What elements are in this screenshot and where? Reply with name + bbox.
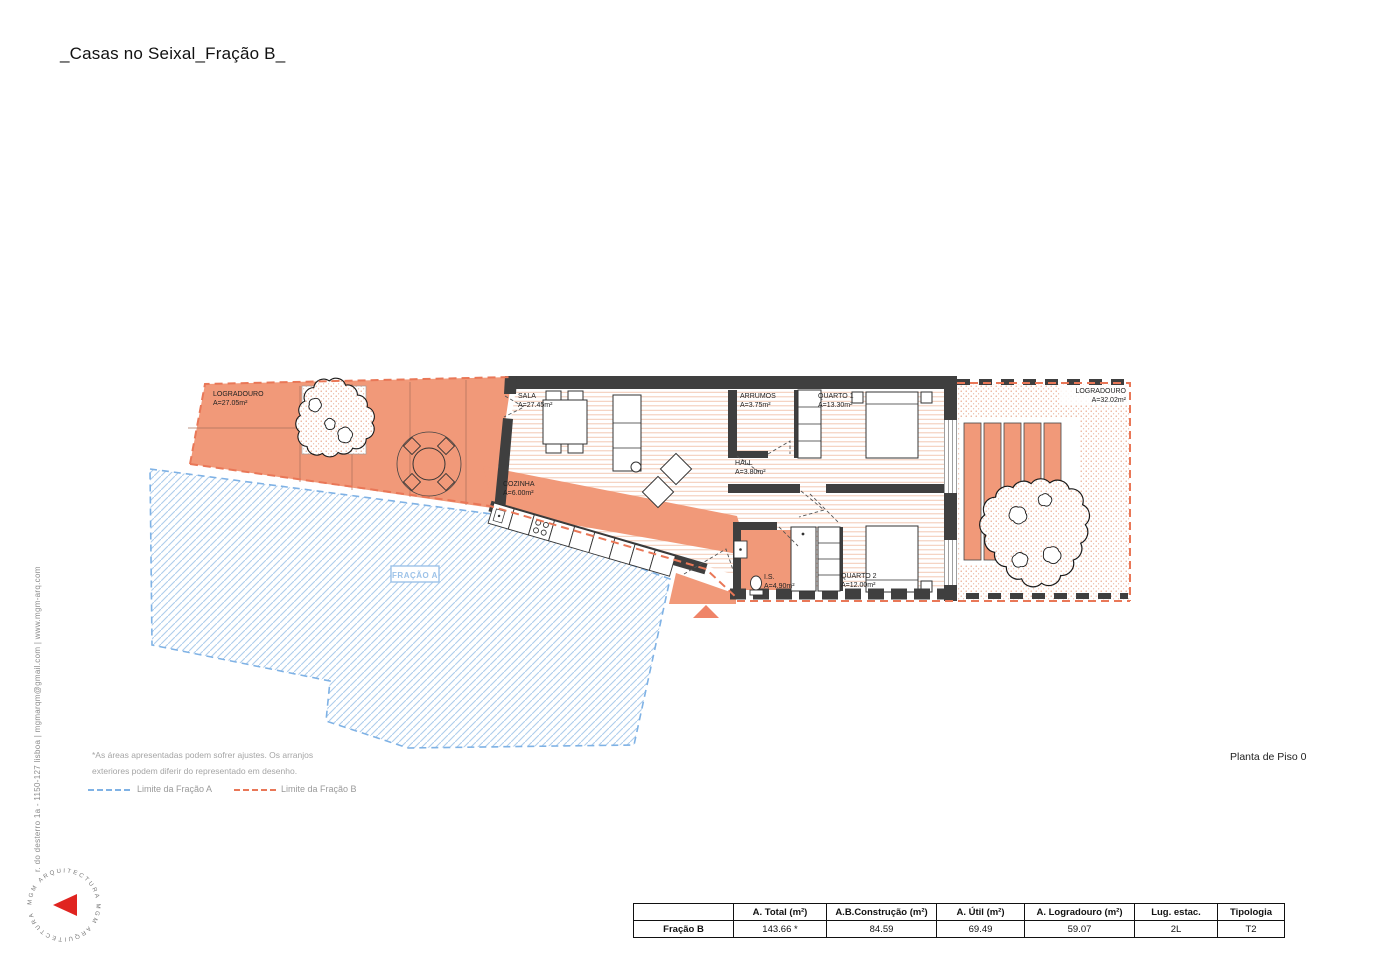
- room-area: A=13.30m²: [818, 402, 853, 409]
- firm-address: r. do desterro 1a - 1150-127 lisboa | mg…: [33, 566, 42, 872]
- legend-line-fracao-b: [234, 789, 276, 791]
- room-label: LOGRADOURO: [1075, 388, 1126, 395]
- room-label: HALL: [735, 460, 753, 467]
- washbasin-icon: [734, 541, 747, 558]
- entrance-marker: [693, 605, 719, 618]
- sheet: _Casas no Seixal_Fração B_ FRAÇÃO A: [0, 0, 1382, 971]
- cell-lug-estac: 2L: [1135, 921, 1218, 938]
- col-header: A.B.Construção (m²): [827, 904, 937, 921]
- row-label: Fração B: [634, 921, 734, 938]
- table-header-row: A. Total (m²) A.B.Construção (m²) A. Úti…: [634, 904, 1285, 921]
- col-header: Lug. estac.: [1135, 904, 1218, 921]
- legend-line-fracao-a: [88, 789, 130, 791]
- areas-table: A. Total (m²) A.B.Construção (m²) A. Úti…: [633, 903, 1285, 938]
- cell-a-logradouro: 59.07: [1025, 921, 1135, 938]
- col-header: A. Útil (m²): [937, 904, 1025, 921]
- room-label: QUARTO 2: [841, 573, 877, 580]
- room-label: ARRUMOS: [740, 393, 776, 400]
- legend-label-fracao-a: Limite da Fração A: [137, 784, 212, 794]
- legend-label-fracao-b: Limite da Fração B: [281, 784, 357, 794]
- cell-a-util: 69.49: [937, 921, 1025, 938]
- firm-logo: MGM ARQUITECTURA MGM ARQUITECTURA: [24, 863, 104, 948]
- disclaimer-note: *As áreas apresentadas podem sofrer ajus…: [92, 748, 313, 779]
- drawing-label: Planta de Piso 0: [1230, 751, 1306, 763]
- door-panel: [791, 527, 816, 591]
- room-area: A=32.02m²: [1092, 397, 1127, 404]
- cell-tipologia: T2: [1218, 921, 1285, 938]
- room-area: A=4.90m²: [764, 583, 795, 590]
- porch: [669, 573, 736, 604]
- room-label: LOGRADOURO: [213, 391, 264, 398]
- room-area: A=27.45m²: [518, 402, 553, 409]
- room-label: COZINHA: [503, 481, 535, 488]
- room-area: A=12.00m²: [841, 582, 876, 589]
- room-label: QUARTO 1: [818, 393, 854, 400]
- note-line: exteriores podem diferir do representado…: [92, 764, 313, 780]
- cell-ab-construcao: 84.59: [827, 921, 937, 938]
- cell-a-total: 143.66 *: [734, 921, 827, 938]
- room-label: SALA: [518, 393, 536, 400]
- col-header: A. Total (m²): [734, 904, 827, 921]
- floor-plan: FRAÇÃO A LOGRADO: [0, 0, 1382, 971]
- note-line: *As áreas apresentadas podem sofrer ajus…: [92, 748, 313, 764]
- sofa: [613, 395, 641, 471]
- table-row: Fração B 143.66 * 84.59 69.49 59.07 2L T…: [634, 921, 1285, 938]
- is-floor: [741, 530, 791, 590]
- dining-set: [543, 391, 587, 453]
- room-area: A=27.05m²: [213, 400, 248, 407]
- room-area: A=3.80m²: [735, 469, 766, 476]
- col-header: A. Logradouro (m²): [1025, 904, 1135, 921]
- col-header: [634, 904, 734, 921]
- room-area: A=6.00m²: [503, 490, 534, 497]
- logo-triangle-icon: [53, 894, 77, 916]
- room-area: A=3.75m²: [740, 402, 771, 409]
- room-label: I.S.: [764, 574, 775, 581]
- logradouro-right: LOGRADOURO A=32.02m²: [957, 384, 1130, 600]
- col-header: Tipologia: [1218, 904, 1285, 921]
- fracao-a-label: FRAÇÃO A: [392, 571, 438, 580]
- fracao-a-tag: FRAÇÃO A: [391, 566, 439, 582]
